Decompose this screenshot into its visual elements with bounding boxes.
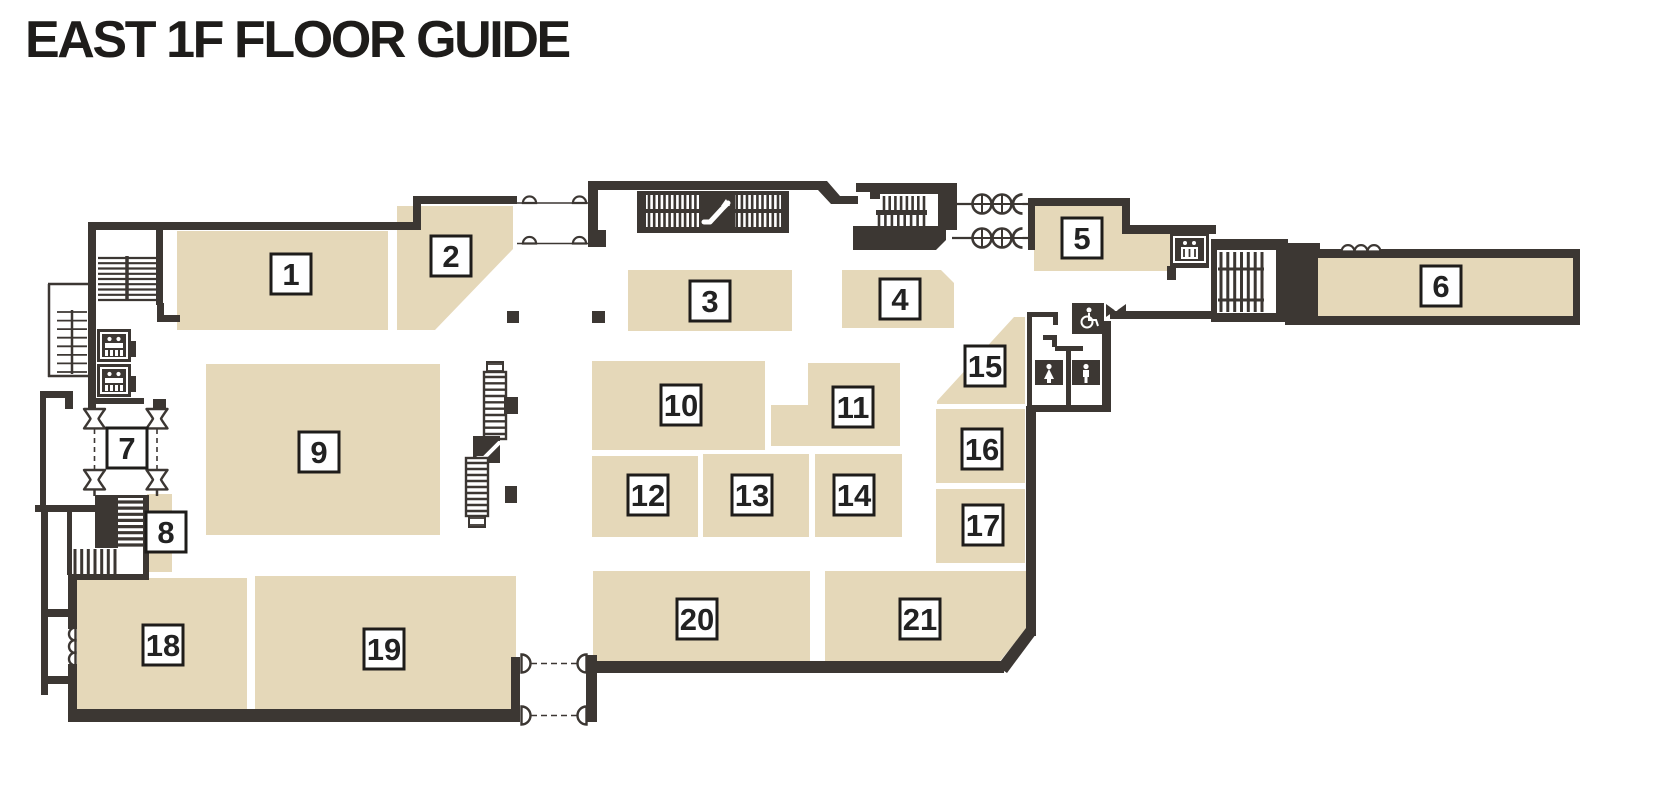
svg-text:11: 11 [837, 390, 870, 425]
svg-text:15: 15 [968, 349, 1002, 384]
svg-text:2: 2 [442, 239, 459, 274]
svg-text:12: 12 [631, 478, 665, 513]
svg-text:21: 21 [903, 602, 937, 637]
svg-text:4: 4 [891, 282, 909, 317]
svg-text:EAST 1F FLOOR GUIDE: EAST 1F FLOOR GUIDE [25, 11, 569, 69]
svg-text:17: 17 [966, 508, 1000, 543]
svg-text:7: 7 [118, 431, 135, 466]
svg-text:16: 16 [965, 432, 999, 467]
svg-text:5: 5 [1073, 221, 1090, 256]
svg-text:10: 10 [664, 388, 698, 423]
svg-text:19: 19 [367, 632, 401, 667]
svg-text:9: 9 [310, 435, 327, 470]
svg-text:1: 1 [282, 257, 299, 292]
svg-text:8: 8 [157, 515, 174, 550]
svg-text:13: 13 [735, 478, 769, 513]
svg-text:18: 18 [146, 628, 180, 663]
svg-text:14: 14 [837, 478, 872, 513]
svg-text:3: 3 [701, 284, 718, 319]
svg-text:6: 6 [1432, 269, 1449, 304]
svg-text:20: 20 [680, 602, 714, 637]
